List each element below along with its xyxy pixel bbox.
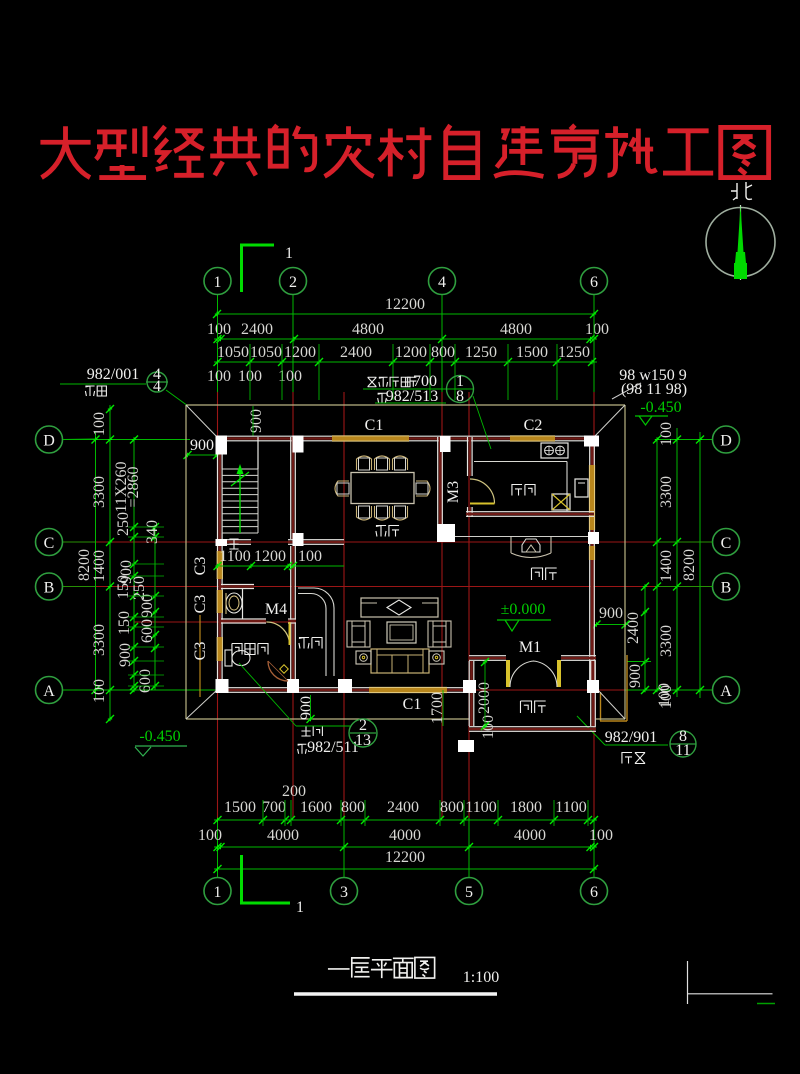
svg-text:1500: 1500 [224,799,256,816]
svg-text:1:100: 1:100 [463,969,499,986]
svg-text:982/001: 982/001 [87,366,139,383]
svg-text:900: 900 [139,594,156,618]
svg-text:C: C [44,535,55,552]
svg-text:1400: 1400 [658,550,675,582]
svg-text:12200: 12200 [385,296,425,313]
svg-text:6: 6 [590,884,598,901]
svg-text:900: 900 [190,437,214,454]
svg-text:1400: 1400 [91,550,108,582]
svg-text:1250: 1250 [558,344,590,361]
svg-text:100: 100 [298,548,322,565]
svg-text:4800: 4800 [500,321,532,338]
svg-text:3300: 3300 [658,476,675,508]
svg-text:C2: C2 [524,417,543,434]
svg-text:1500: 1500 [516,344,548,361]
svg-text:3300: 3300 [91,624,108,656]
svg-text:1100: 1100 [555,799,586,816]
svg-text:A: A [43,683,55,700]
svg-text:1600: 1600 [300,799,332,816]
svg-text:13: 13 [355,732,371,749]
svg-text:4000: 4000 [514,827,546,844]
svg-text:11: 11 [675,742,690,759]
svg-text:900: 900 [627,664,644,688]
svg-text:250: 250 [115,512,132,536]
svg-text:100: 100 [585,321,609,338]
svg-text:800: 800 [431,344,455,361]
svg-text:340: 340 [144,520,161,544]
svg-text:±0.000: ±0.000 [501,601,546,618]
svg-text:100: 100 [480,715,497,739]
svg-text:=2860: =2860 [125,466,142,507]
svg-text:100: 100 [589,827,613,844]
svg-text:D: D [720,433,732,450]
svg-text:3300: 3300 [91,476,108,508]
svg-text:982/513: 982/513 [386,388,438,405]
svg-text:(98 11 98): (98 11 98) [621,381,687,398]
svg-text:-0.450: -0.450 [640,399,681,416]
svg-text:1700: 1700 [429,692,446,724]
svg-text:4000: 4000 [389,827,421,844]
svg-text:100: 100 [91,412,108,436]
svg-text:8: 8 [456,388,464,405]
svg-text:D: D [43,433,55,450]
svg-text:1200: 1200 [254,548,286,565]
svg-text:3: 3 [340,884,348,901]
svg-text:100: 100 [207,368,231,385]
svg-text:2400: 2400 [387,799,419,816]
svg-text:150: 150 [115,575,132,599]
svg-text:200: 200 [282,783,306,800]
svg-text:600: 600 [139,619,156,643]
svg-text:700: 700 [262,799,286,816]
svg-text:600: 600 [137,669,154,693]
svg-text:2400: 2400 [625,612,642,644]
svg-text:3300: 3300 [658,625,675,657]
svg-text:2400: 2400 [241,321,273,338]
svg-text:1100: 1100 [219,548,250,565]
svg-text:100: 100 [207,321,231,338]
svg-text:M3: M3 [445,481,462,503]
svg-text:100: 100 [91,679,108,703]
svg-text:C1: C1 [365,417,384,434]
svg-text:1250: 1250 [465,344,497,361]
svg-text:900: 900 [599,605,623,622]
svg-text:C1: C1 [403,696,422,713]
svg-text:800: 800 [341,799,365,816]
svg-text:M1: M1 [519,639,541,656]
svg-text:1050: 1050 [217,344,249,361]
svg-text:6: 6 [590,274,598,291]
svg-text:1: 1 [214,274,222,291]
svg-text:C3: C3 [192,595,209,614]
svg-text:150: 150 [116,611,133,635]
svg-text:4000: 4000 [267,827,299,844]
svg-text:B: B [721,580,732,597]
svg-text:A: A [720,683,732,700]
svg-text:1: 1 [285,245,293,262]
svg-text:982/901: 982/901 [605,729,657,746]
svg-text:5: 5 [465,884,473,901]
svg-text:800: 800 [440,799,464,816]
svg-text:1800: 1800 [510,799,542,816]
svg-text:B: B [44,580,55,597]
svg-text:8200: 8200 [681,549,698,581]
svg-text:4800: 4800 [352,321,384,338]
svg-text:1200: 1200 [395,344,427,361]
svg-text:900: 900 [248,409,265,433]
svg-text:2: 2 [289,274,297,291]
svg-text:2000: 2000 [476,682,493,714]
svg-text:M4: M4 [265,601,287,618]
svg-text:4: 4 [153,378,161,395]
svg-text:-0.450: -0.450 [139,728,180,745]
svg-text:100: 100 [198,827,222,844]
svg-text:1: 1 [296,899,304,916]
svg-text:12200: 12200 [385,849,425,866]
svg-text:C3: C3 [192,642,209,661]
svg-text:2400: 2400 [340,344,372,361]
svg-text:4: 4 [438,274,446,291]
svg-text:100: 100 [658,422,675,446]
svg-text:1200: 1200 [284,344,316,361]
svg-text:100: 100 [656,683,673,707]
svg-text:1050: 1050 [250,344,282,361]
svg-text:1100: 1100 [465,799,496,816]
svg-text:1: 1 [214,884,222,901]
svg-text:C: C [721,535,732,552]
svg-text:C3: C3 [192,557,209,576]
